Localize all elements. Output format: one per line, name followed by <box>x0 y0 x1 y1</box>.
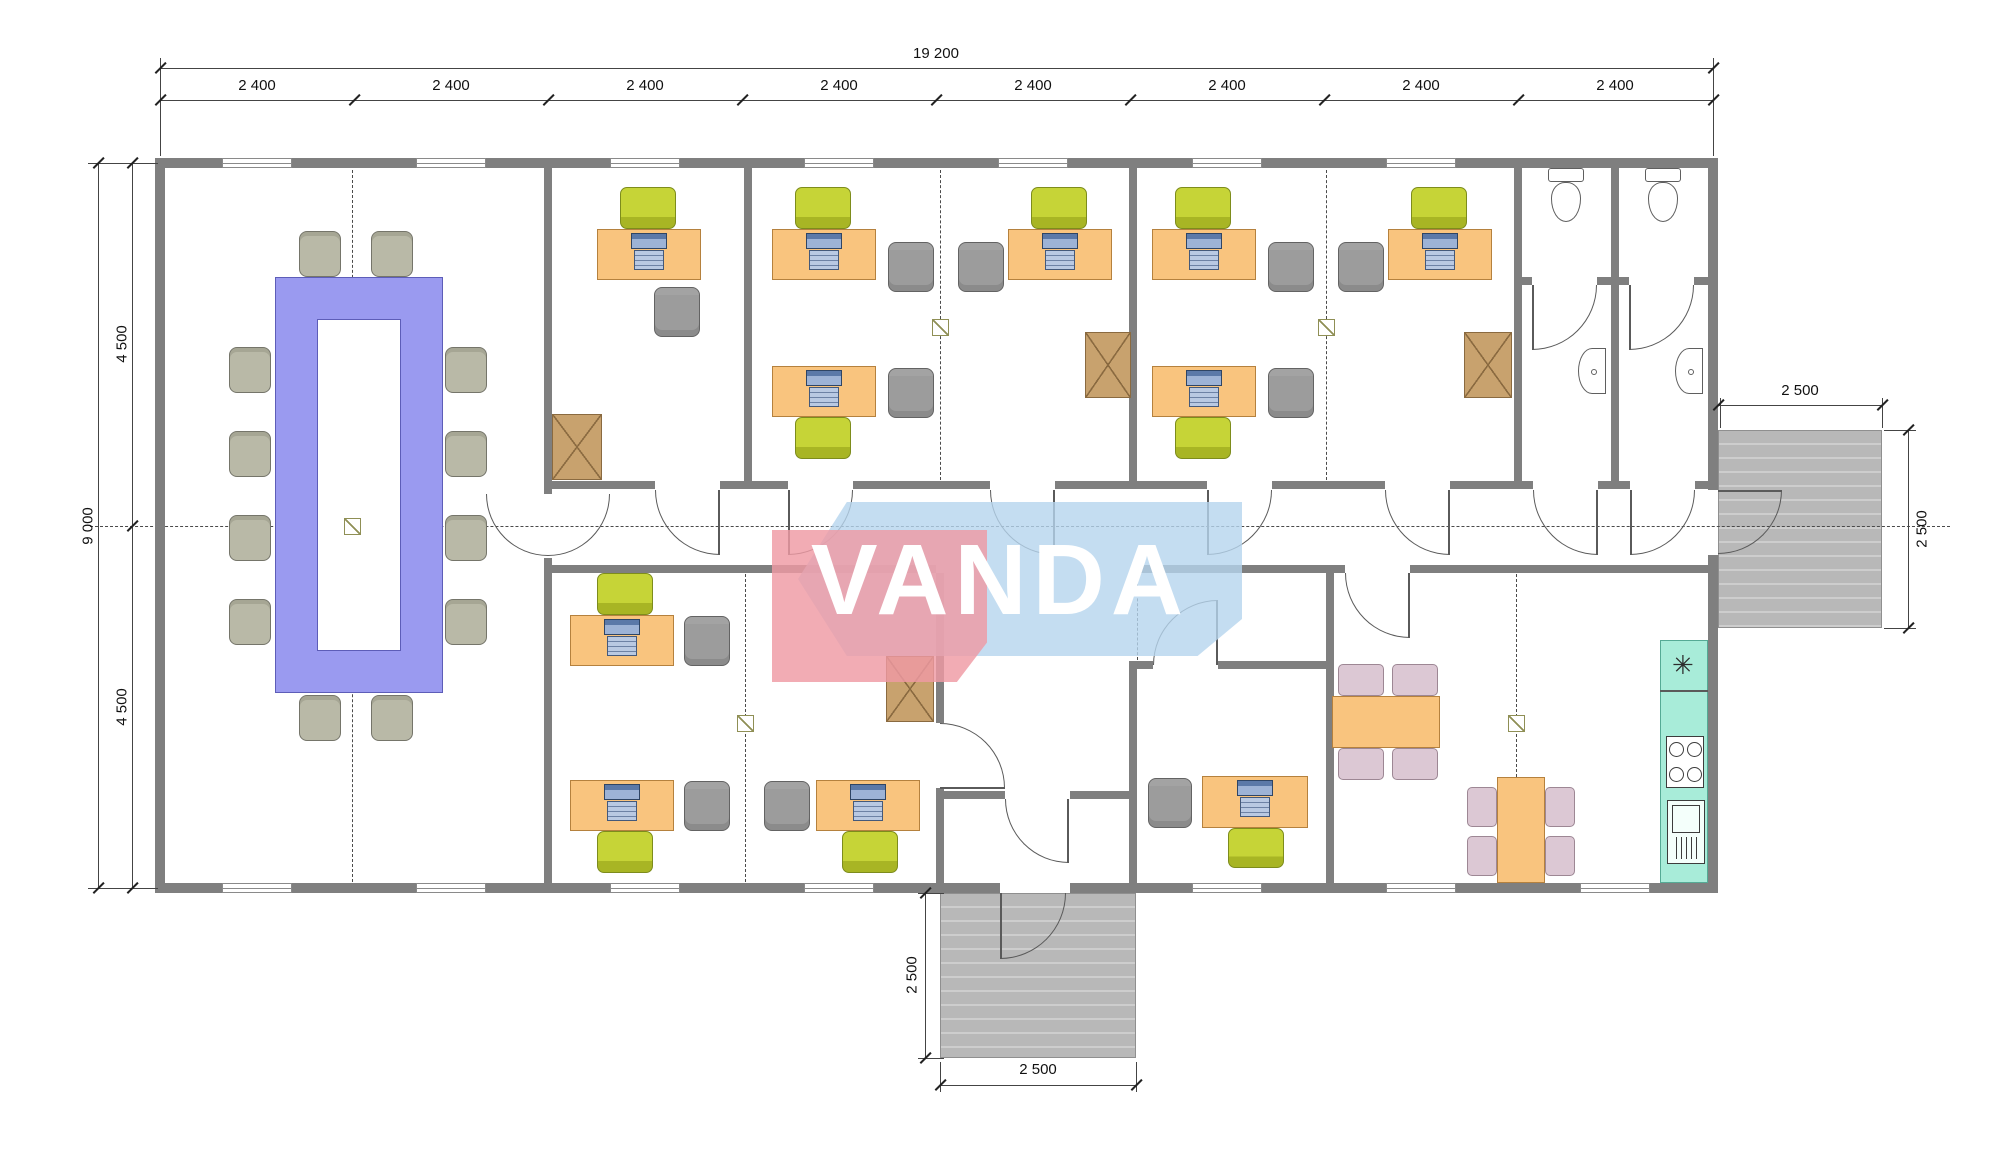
window <box>610 883 680 893</box>
toilet-tank <box>1645 168 1681 182</box>
dim-right-porch-depth: 2 500 <box>1914 510 1931 548</box>
office-desk <box>1202 776 1308 828</box>
wall-segment <box>936 573 944 723</box>
wall-segment <box>720 481 788 489</box>
conference-chair <box>229 347 271 393</box>
door-leaf <box>940 787 1005 789</box>
conference-chair <box>445 599 487 645</box>
computer-icon <box>806 233 842 279</box>
dim-bay-6: 2 400 <box>1208 77 1246 94</box>
toilet-bowl <box>1648 182 1678 222</box>
office-desk <box>1008 229 1112 280</box>
wall-segment <box>544 558 552 883</box>
conference-table-center <box>317 319 401 651</box>
extension-line <box>940 1062 941 1092</box>
window <box>610 158 680 168</box>
wall-segment <box>155 158 165 893</box>
wall-segment <box>1694 277 1708 285</box>
wall-segment <box>1514 168 1522 481</box>
dining-chair <box>1392 748 1438 780</box>
task-chair-green <box>842 831 898 873</box>
window <box>222 158 292 168</box>
task-chair-green <box>1228 828 1284 868</box>
guest-chair-gray <box>764 781 810 831</box>
toilet-tank <box>1548 168 1584 182</box>
task-chair-green <box>620 187 676 229</box>
kitchen-sink-icon: ✳ <box>1672 652 1702 682</box>
grid-intersection-marker <box>1318 319 1335 336</box>
wall-segment <box>155 158 1718 168</box>
dim-bay-7: 2 400 <box>1402 77 1440 94</box>
wall-segment <box>1055 481 1207 489</box>
guest-chair-gray <box>888 242 934 292</box>
extension-line <box>1884 628 1916 629</box>
computer-icon <box>604 784 640 830</box>
wall-segment <box>1272 481 1385 489</box>
door-swing-arc <box>1630 490 1695 555</box>
dining-table <box>1497 777 1545 883</box>
window <box>416 158 486 168</box>
office-desk <box>1152 229 1256 280</box>
office-desk <box>1388 229 1492 280</box>
guest-chair-gray <box>1148 778 1192 828</box>
door-leaf <box>1448 490 1450 555</box>
wall-segment <box>936 788 944 883</box>
computer-icon <box>1422 233 1458 279</box>
conference-chair <box>445 515 487 561</box>
window <box>804 158 874 168</box>
storage-cabinet <box>552 414 602 480</box>
door-leaf <box>1408 573 1410 638</box>
conference-chair <box>299 695 341 741</box>
bathroom-sink <box>1675 348 1703 394</box>
dim-bay-2: 2 400 <box>432 77 470 94</box>
computer-icon <box>1186 370 1222 416</box>
wall-segment <box>1129 168 1137 481</box>
dim-total-width: 19 200 <box>913 45 959 62</box>
task-chair-green <box>1175 187 1231 229</box>
guest-chair-gray <box>888 368 934 418</box>
wall-segment <box>1611 168 1619 481</box>
door-swing-arc <box>548 494 610 556</box>
toilet-bowl <box>1551 182 1581 222</box>
wall-segment <box>744 168 752 481</box>
dining-chair <box>1338 664 1384 696</box>
wall-segment <box>1695 481 1708 489</box>
guest-chair-gray <box>1268 242 1314 292</box>
window <box>1386 883 1456 893</box>
dimension-line <box>925 893 926 1058</box>
stove-burner <box>1669 742 1684 757</box>
stove-burner <box>1687 742 1702 757</box>
wall-segment <box>1597 277 1611 285</box>
dining-chair <box>1545 836 1575 876</box>
wall-segment <box>1070 791 1133 799</box>
door-leaf <box>1207 490 1209 555</box>
grid-intersection-marker <box>737 715 754 732</box>
office-desk <box>597 229 701 280</box>
guest-chair-gray <box>958 242 1004 292</box>
conference-chair <box>299 231 341 277</box>
door-leaf <box>718 490 720 555</box>
computer-icon <box>806 370 842 416</box>
task-chair-green <box>795 187 851 229</box>
stove-icon <box>1666 736 1704 788</box>
stove-burner <box>1669 767 1684 782</box>
conference-chair <box>229 515 271 561</box>
dim-bay-3: 2 400 <box>626 77 664 94</box>
window <box>998 158 1068 168</box>
task-chair-green <box>1031 187 1087 229</box>
office-desk <box>772 229 876 280</box>
wall-segment <box>1598 481 1630 489</box>
conference-chair <box>371 695 413 741</box>
grid-centerline <box>1137 574 1138 660</box>
dimension-line <box>940 1085 1136 1086</box>
extension-line <box>1884 430 1916 431</box>
extension-line <box>160 58 161 156</box>
conference-chair <box>229 599 271 645</box>
dim-total-depth: 9 000 <box>80 507 97 545</box>
door-leaf <box>1596 490 1598 555</box>
door-swing-arc <box>940 723 1005 788</box>
computer-icon <box>1042 233 1078 279</box>
door-swing-arc <box>788 490 853 555</box>
dim-right-porch-width: 2 500 <box>1781 382 1819 399</box>
wall-segment <box>1133 565 1345 573</box>
computer-icon <box>1237 780 1273 827</box>
dimension-line <box>1718 405 1882 406</box>
office-desk <box>816 780 920 831</box>
computer-icon <box>850 784 886 830</box>
wall-segment <box>1708 158 1718 490</box>
door-leaf <box>1630 490 1632 555</box>
dim-bay-4: 2 400 <box>820 77 858 94</box>
task-chair-green <box>1175 417 1231 459</box>
door-swing-arc <box>1005 799 1069 863</box>
storage-cabinet <box>1085 332 1131 398</box>
storage-cabinet <box>886 656 934 722</box>
door-leaf <box>1629 285 1631 350</box>
office-desk <box>570 615 674 666</box>
wall-segment <box>552 481 655 489</box>
floor-plan-canvas: ✳19 2002 4002 4002 4002 4002 4002 4002 4… <box>0 0 2000 1160</box>
window <box>222 883 292 893</box>
wall-segment <box>544 168 552 494</box>
door-swing-arc <box>1629 285 1694 350</box>
bathroom-sink <box>1578 348 1606 394</box>
office-desk <box>1152 366 1256 417</box>
conference-chair <box>445 347 487 393</box>
grid-intersection-marker <box>344 518 361 535</box>
counter-divider <box>1660 690 1708 692</box>
office-desk <box>772 366 876 417</box>
task-chair-green <box>597 573 653 615</box>
dining-chair <box>1392 664 1438 696</box>
wall-segment <box>1218 661 1326 669</box>
conference-chair <box>371 231 413 277</box>
door-leaf <box>1000 893 1002 959</box>
dimension-line <box>98 163 99 888</box>
door-swing-arc <box>1207 490 1272 555</box>
door-leaf <box>788 490 790 555</box>
door-leaf <box>1053 490 1055 555</box>
task-chair-green <box>795 417 851 459</box>
guest-chair-gray <box>1268 368 1314 418</box>
wall-segment <box>1133 661 1153 669</box>
dining-chair <box>1545 787 1575 827</box>
door-leaf <box>1067 799 1069 863</box>
window <box>1192 883 1262 893</box>
door-leaf <box>1532 285 1534 350</box>
conference-chair <box>445 431 487 477</box>
door-swing-arc <box>990 490 1055 555</box>
dim-bottom-porch-depth: 2 500 <box>904 956 921 994</box>
conference-chair <box>229 431 271 477</box>
dim-bay-5: 2 400 <box>1014 77 1052 94</box>
dimension-line <box>1908 430 1909 628</box>
door-leaf <box>1718 490 1782 492</box>
wall-segment <box>940 791 1005 799</box>
dining-table <box>1332 696 1440 748</box>
window <box>1580 883 1650 893</box>
wall-segment <box>1410 565 1708 573</box>
kitchen-appliance-icon <box>1667 800 1705 864</box>
dimension-line <box>160 68 1713 69</box>
dim-bottom-porch-width: 2 500 <box>1019 1061 1057 1078</box>
guest-chair-gray <box>684 781 730 831</box>
dim-bay-1: 2 400 <box>238 77 276 94</box>
door-swing-arc <box>1385 490 1450 555</box>
dining-chair <box>1467 787 1497 827</box>
guest-chair-gray <box>1338 242 1384 292</box>
dining-chair <box>1338 748 1384 780</box>
task-chair-green <box>597 831 653 873</box>
extension-line <box>1713 58 1714 156</box>
door-swing-arc <box>1532 285 1597 350</box>
door-swing-arc <box>486 494 548 556</box>
dim-depth-lower: 4 500 <box>114 688 131 726</box>
wall-segment <box>1450 481 1533 489</box>
wall-segment <box>1129 661 1137 883</box>
wall-segment <box>853 481 990 489</box>
task-chair-green <box>1411 187 1467 229</box>
door-swing-arc <box>1345 573 1410 638</box>
window <box>1192 158 1262 168</box>
storage-cabinet <box>1464 332 1512 398</box>
window <box>1386 158 1456 168</box>
dining-chair <box>1467 836 1497 876</box>
computer-icon <box>604 619 640 665</box>
office-desk <box>570 780 674 831</box>
extension-line <box>1136 1062 1137 1092</box>
wall-segment <box>1619 277 1629 285</box>
grid-intersection-marker <box>1508 715 1525 732</box>
wall-segment <box>1522 277 1532 285</box>
stove-burner <box>1687 767 1702 782</box>
dim-bay-8: 2 400 <box>1596 77 1634 94</box>
guest-chair-gray <box>684 616 730 666</box>
dim-depth-upper: 4 500 <box>114 325 131 363</box>
window <box>416 883 486 893</box>
door-swing-arc <box>1533 490 1598 555</box>
computer-icon <box>631 233 667 279</box>
computer-icon <box>1186 233 1222 279</box>
grid-intersection-marker <box>932 319 949 336</box>
window <box>804 883 874 893</box>
wall-segment <box>1708 555 1718 893</box>
door-leaf <box>1216 600 1218 665</box>
door-swing-arc <box>655 490 720 555</box>
wall-segment <box>552 565 936 573</box>
door-swing-arc <box>1153 600 1218 665</box>
guest-chair-gray <box>654 287 700 337</box>
